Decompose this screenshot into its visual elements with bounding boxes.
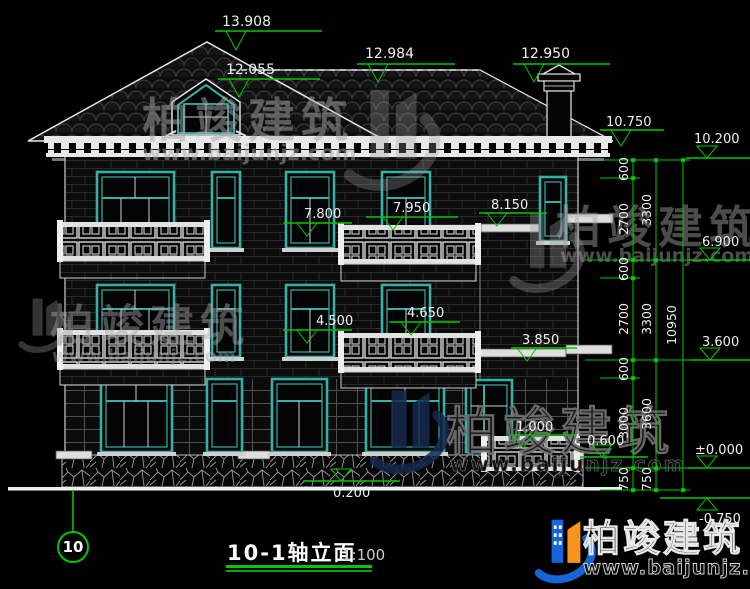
watermark-url-text: www.baijunjz.com [142,141,357,165]
elevation-value: -0.750 [699,512,741,527]
pier-cap [56,451,92,459]
dim-middle-4: 750 [639,467,654,491]
window-f1-c [268,379,331,456]
dim-middle-2: 3300 [639,303,654,335]
watermark-brand-text: 柏竣建筑 [50,301,250,352]
drawing-scale: 1:100 [342,546,385,564]
elevation-value: 0.200 [333,486,370,501]
axis-number: 10 [63,538,84,556]
watermark-url-text: www.baijunjz.com [583,556,750,579]
window-f3-b [208,172,244,252]
elevation-value: 13.908 [222,14,271,30]
drawing-title: 10-1轴立面 [227,541,357,565]
dim-middle-1: 3300 [639,194,654,226]
elevation-value: 12.055 [226,62,275,78]
elevation-value: 7.800 [304,207,341,222]
elevation-drawing-canvas: 柏竣建筑 www.baijunjz.com 柏竣建筑 www.baijunjz.… [0,0,750,589]
title-block: 10-1轴立面 1:100 [226,541,385,572]
window-f1-b [203,379,246,456]
window-f1-a [97,379,176,456]
title-underline-thin [226,570,372,572]
dim-inner-2: 2700 [616,203,631,235]
elevation-value: 4.650 [407,306,444,321]
dim-middle-3: 3600 [639,398,654,430]
elevation-value: 1.000 [516,420,553,435]
dim-inner-6: 3000 [616,407,631,439]
dim-total: 10950 [664,305,679,345]
elevation-value: 12.984 [365,46,414,62]
elevation-value: 4.500 [316,314,353,329]
ledge-cap-right [566,345,612,354]
dim-inner-5: 600 [616,357,631,381]
elevation-value: 7.950 [393,201,430,216]
elevation-value: 12.950 [521,46,570,62]
dim-inner-7: 750 [616,467,631,491]
dim-inner-3: 600 [616,257,631,281]
balcony-f3-center [338,223,481,281]
dim-inner-1: 600 [616,157,631,181]
watermark-left-middle: 柏竣建筑 www.baijunjz.com [21,298,250,367]
balcony-f3-left [57,220,210,278]
elevation-value: 10.200 [694,132,740,147]
balcony-f2-center [338,331,481,388]
elevation-value: 8.150 [491,198,528,213]
dim-inner-4: 2700 [616,303,631,335]
watermark-url-text: www.baijunjz.com [52,346,236,367]
title-underline-thick [226,565,372,568]
ground-line [8,487,622,491]
elevation-value: 3.850 [522,333,559,348]
elevation-value: 10.750 [606,115,652,130]
